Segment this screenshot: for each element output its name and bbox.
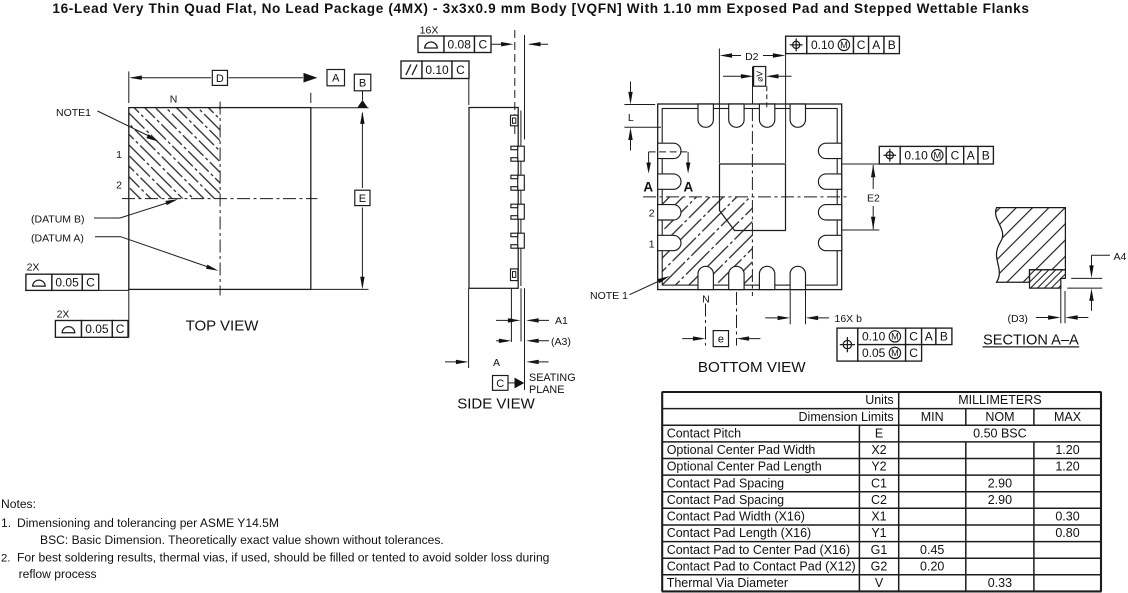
svg-text:0.05: 0.05 — [55, 276, 79, 290]
svg-text:A1: A1 — [555, 315, 568, 327]
svg-text:(D3): (D3) — [1008, 313, 1028, 325]
svg-text:A4: A4 — [1114, 251, 1127, 263]
svg-text:Y2: Y2 — [871, 460, 886, 474]
svg-text:Contact Pad to Center Pad (X16: Contact Pad to Center Pad (X16) — [667, 543, 850, 557]
svg-text:NOTE 1: NOTE 1 — [590, 290, 628, 302]
svg-text:BSC: Basic Dimension. Theoreti: BSC: Basic Dimension. Theoretically exac… — [40, 533, 444, 547]
svg-text:Y1: Y1 — [871, 526, 886, 540]
svg-text:(DATUM A): (DATUM A) — [31, 233, 84, 245]
svg-text:16X b: 16X b — [835, 313, 863, 325]
svg-text:C: C — [478, 38, 487, 52]
svg-text:Thermal Via Diameter: Thermal Via Diameter — [667, 576, 788, 590]
svg-text:Dimension Limits: Dimension Limits — [799, 410, 894, 424]
svg-text:B: B — [359, 78, 366, 90]
svg-text:16-Lead Very Thin Quad Flat, N: 16-Lead Very Thin Quad Flat, No Lead Pac… — [52, 1, 1029, 16]
svg-text:C: C — [857, 38, 866, 52]
svg-text:1: 1 — [649, 238, 655, 250]
svg-text:C: C — [86, 276, 95, 290]
svg-text:SEATING: SEATING — [529, 372, 576, 384]
svg-text:Units: Units — [865, 393, 893, 407]
svg-text:A: A — [925, 330, 933, 344]
svg-text:C1: C1 — [871, 476, 887, 490]
svg-text:NOTE1: NOTE1 — [56, 107, 91, 119]
svg-text:M: M — [933, 151, 941, 161]
svg-text:Dimensioning and tolerancing p: Dimensioning and tolerancing per ASME Y1… — [17, 516, 279, 530]
svg-text:SECTION A–A: SECTION A–A — [983, 333, 1079, 349]
svg-text:Optional Center Pad Width: Optional Center Pad Width — [667, 443, 816, 457]
svg-text:1.20: 1.20 — [1055, 460, 1079, 474]
svg-text:0.20: 0.20 — [920, 559, 944, 573]
svg-text:NOM: NOM — [985, 410, 1014, 424]
svg-text:2X: 2X — [27, 262, 40, 274]
svg-text:E: E — [359, 193, 366, 205]
svg-text:M: M — [891, 332, 899, 342]
svg-text:V: V — [875, 576, 884, 590]
svg-text:(A3): (A3) — [551, 336, 571, 348]
svg-text:C2: C2 — [871, 493, 887, 507]
svg-text:A: A — [872, 38, 880, 52]
svg-text:1.: 1. — [1, 516, 11, 530]
svg-text:G1: G1 — [871, 543, 888, 557]
svg-text:0.80: 0.80 — [1055, 526, 1079, 540]
svg-text:A: A — [967, 149, 975, 163]
svg-text:Contact Pitch: Contact Pitch — [667, 427, 741, 441]
svg-text:C: C — [909, 346, 918, 360]
svg-text:E2: E2 — [867, 192, 880, 204]
svg-text:A: A — [493, 357, 500, 369]
svg-text:0.10: 0.10 — [811, 38, 835, 52]
svg-text:BOTTOM VIEW: BOTTOM VIEW — [698, 359, 806, 376]
svg-text:C: C — [909, 330, 918, 344]
svg-text:TOP VIEW: TOP VIEW — [186, 318, 260, 335]
svg-text:A: A — [332, 73, 340, 85]
svg-text:2: 2 — [116, 180, 122, 192]
svg-text:2X: 2X — [57, 308, 70, 320]
svg-text:PLANE: PLANE — [529, 384, 564, 396]
svg-text:reflow process: reflow process — [19, 567, 97, 581]
svg-text:C: C — [116, 322, 125, 336]
svg-text:C: C — [496, 378, 504, 390]
svg-text:G2: G2 — [871, 559, 888, 573]
svg-text:0.10: 0.10 — [904, 149, 928, 163]
svg-text:Contact Pad Length (X16): Contact Pad Length (X16) — [667, 526, 812, 540]
svg-text:A: A — [684, 179, 694, 194]
svg-text:B: B — [888, 38, 896, 52]
svg-text:Contact Pad Width (X16): Contact Pad Width (X16) — [667, 510, 805, 524]
svg-text:2: 2 — [649, 207, 655, 219]
svg-text:Contact Pad Spacing: Contact Pad Spacing — [667, 493, 784, 507]
svg-text:2.90: 2.90 — [988, 493, 1012, 507]
svg-text:N: N — [170, 93, 178, 105]
svg-text:Contact Pad to Contact Pad (X1: Contact Pad to Contact Pad (X12) — [667, 559, 856, 573]
svg-text:B: B — [982, 149, 990, 163]
svg-text:X1: X1 — [871, 510, 886, 524]
svg-text:2.90: 2.90 — [988, 476, 1012, 490]
svg-text:0.05: 0.05 — [862, 346, 886, 360]
svg-text:E: E — [875, 427, 883, 441]
svg-text:B: B — [940, 330, 948, 344]
svg-text:M: M — [891, 348, 899, 358]
svg-text:Notes:: Notes: — [1, 497, 36, 511]
svg-text:For best soldering results, th: For best soldering results, thermal vias… — [17, 550, 549, 564]
svg-text:0.50 BSC: 0.50 BSC — [973, 427, 1027, 441]
svg-text:MILLIMETERS: MILLIMETERS — [958, 393, 1041, 407]
svg-text:1: 1 — [116, 149, 122, 161]
svg-text:(DATUM B): (DATUM B) — [31, 214, 84, 226]
svg-text:MAX: MAX — [1054, 410, 1082, 424]
svg-text:C: C — [951, 149, 960, 163]
svg-text:e: e — [718, 334, 724, 346]
svg-text:L: L — [628, 112, 634, 124]
svg-text:A: A — [643, 179, 653, 194]
svg-text:MIN: MIN — [921, 410, 944, 424]
svg-text:D: D — [216, 73, 224, 85]
svg-text:M: M — [840, 40, 848, 50]
svg-text:0.30: 0.30 — [1055, 510, 1079, 524]
svg-text:0.05: 0.05 — [85, 322, 109, 336]
svg-text:0.10: 0.10 — [425, 63, 449, 77]
svg-text:X2: X2 — [871, 443, 886, 457]
svg-text:2.: 2. — [1, 552, 10, 564]
svg-text:1.20: 1.20 — [1055, 443, 1079, 457]
svg-text:0.08: 0.08 — [448, 38, 472, 52]
svg-text:D2: D2 — [745, 51, 759, 63]
svg-text:Optional Center Pad Length: Optional Center Pad Length — [667, 460, 822, 474]
svg-text:Contact Pad Spacing: Contact Pad Spacing — [667, 476, 784, 490]
svg-text:16X: 16X — [420, 25, 439, 37]
svg-text:⌀V: ⌀V — [755, 71, 765, 82]
svg-text:SIDE VIEW: SIDE VIEW — [457, 395, 535, 412]
svg-text:0.33: 0.33 — [988, 576, 1012, 590]
svg-text:0.45: 0.45 — [920, 543, 944, 557]
svg-text:C: C — [456, 63, 465, 77]
svg-text:0.10: 0.10 — [862, 330, 886, 344]
